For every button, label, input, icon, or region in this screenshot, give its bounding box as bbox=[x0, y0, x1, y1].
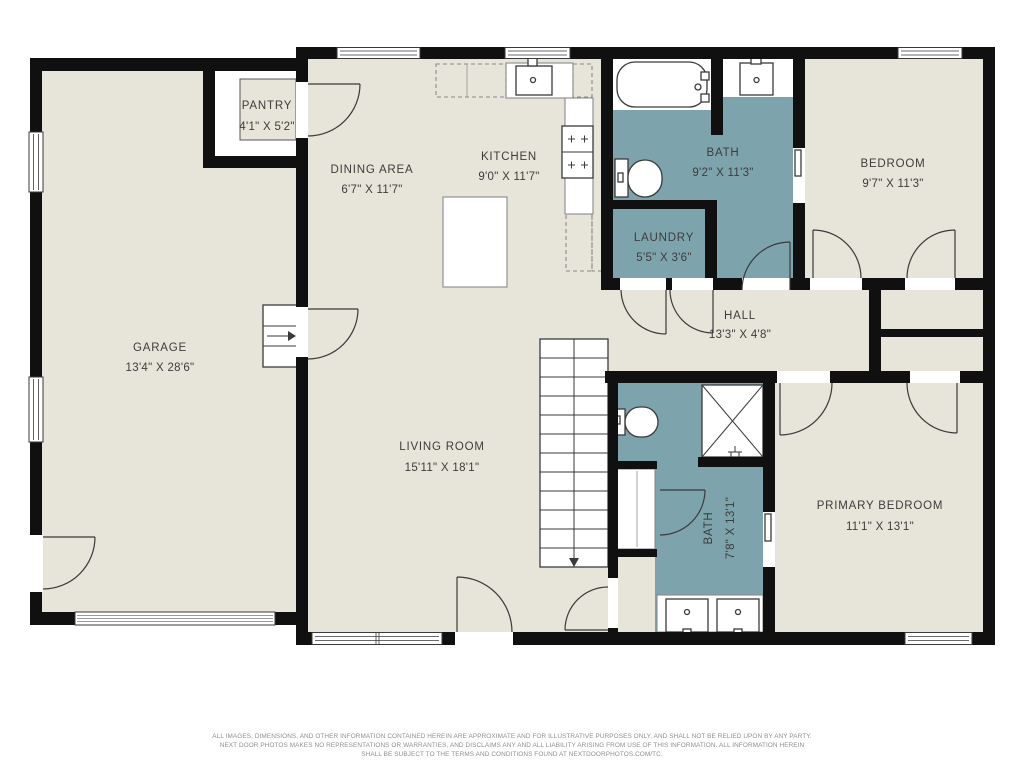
garage-door bbox=[75, 612, 275, 625]
primary-bedroom-window bbox=[905, 633, 972, 645]
room-label-bath-2: BATH bbox=[703, 511, 715, 544]
room-dims-garage: 13'4" X 28'6" bbox=[126, 362, 195, 374]
room-label-laundry: LAUNDRY bbox=[634, 232, 694, 244]
disclaimer-line-2: NEXT DOOR PHOTOS MAKES NO REPRESENTATION… bbox=[220, 742, 805, 749]
bedroom-window bbox=[898, 48, 962, 59]
bath2-vestibule bbox=[618, 557, 655, 632]
stove-icon bbox=[562, 126, 593, 178]
linen-closet bbox=[617, 469, 655, 549]
disclaimer-line-3: SHALL BE SUBJECT TO THE TERMS AND CONDIT… bbox=[361, 751, 663, 758]
room-dims-bedroom: 9'7" X 11'3" bbox=[862, 178, 923, 190]
room-dims-kitchen: 9'0" X 11'7" bbox=[478, 171, 539, 183]
room-label-garage: GARAGE bbox=[133, 342, 187, 354]
toilet-2-icon bbox=[612, 407, 658, 437]
room-label-kitchen: KITCHEN bbox=[481, 151, 537, 163]
room-dims-laundry: 5'5" X 3'6" bbox=[636, 252, 692, 264]
garage-window-1 bbox=[29, 132, 43, 192]
vanity-double-sink-icon bbox=[657, 595, 763, 637]
room-dims-bath: 9'2" X 11'3" bbox=[692, 167, 753, 179]
room-label-bedroom: BEDROOM bbox=[860, 158, 925, 170]
floor-plan: GARAGE 13'4" X 28'6" PANTRY 4'1" X 5'2" … bbox=[0, 0, 1024, 768]
room-dims-pantry: 4'1" X 5'2" bbox=[239, 121, 295, 133]
bathtub-icon bbox=[617, 62, 709, 107]
room-dims-dining-area: 6'7" X 11'7" bbox=[341, 184, 402, 196]
room-label-living-room: LIVING ROOM bbox=[399, 441, 484, 453]
toilet-icon bbox=[615, 159, 662, 197]
disclaimer: ALL IMAGES, DIMENSIONS, AND OTHER INFORM… bbox=[212, 733, 812, 758]
shower-icon bbox=[702, 385, 763, 458]
disclaimer-line-1: ALL IMAGES, DIMENSIONS, AND OTHER INFORM… bbox=[212, 733, 812, 740]
room-label-pantry: PANTRY bbox=[242, 100, 292, 112]
room-dims-primary-bedroom: 11'1" X 13'1" bbox=[846, 521, 914, 533]
room-dims-hall: 13'3" X 4'8" bbox=[709, 329, 771, 341]
garage-steps bbox=[263, 305, 298, 367]
pocket-door-bath-bedroom bbox=[793, 148, 805, 203]
garage-window-2 bbox=[29, 377, 43, 442]
kitchen-island bbox=[443, 197, 507, 287]
kitchen-window bbox=[505, 48, 570, 59]
room-label-hall: HALL bbox=[724, 310, 756, 322]
room-label-bath: BATH bbox=[706, 147, 739, 159]
dining-window bbox=[337, 48, 420, 59]
room-label-dining-area: DINING AREA bbox=[331, 164, 414, 176]
stairs bbox=[540, 339, 608, 567]
room-dims-bath-2: 7'8" X 13'1" bbox=[725, 497, 737, 559]
pocket-door-bath2-primary bbox=[763, 512, 775, 567]
room-dims-living-room: 15'11" X 18'1" bbox=[405, 462, 480, 474]
room-label-primary-bedroom: PRIMARY BEDROOM bbox=[817, 500, 944, 512]
bath-sink-icon bbox=[740, 57, 773, 95]
living-room-window bbox=[312, 633, 442, 645]
